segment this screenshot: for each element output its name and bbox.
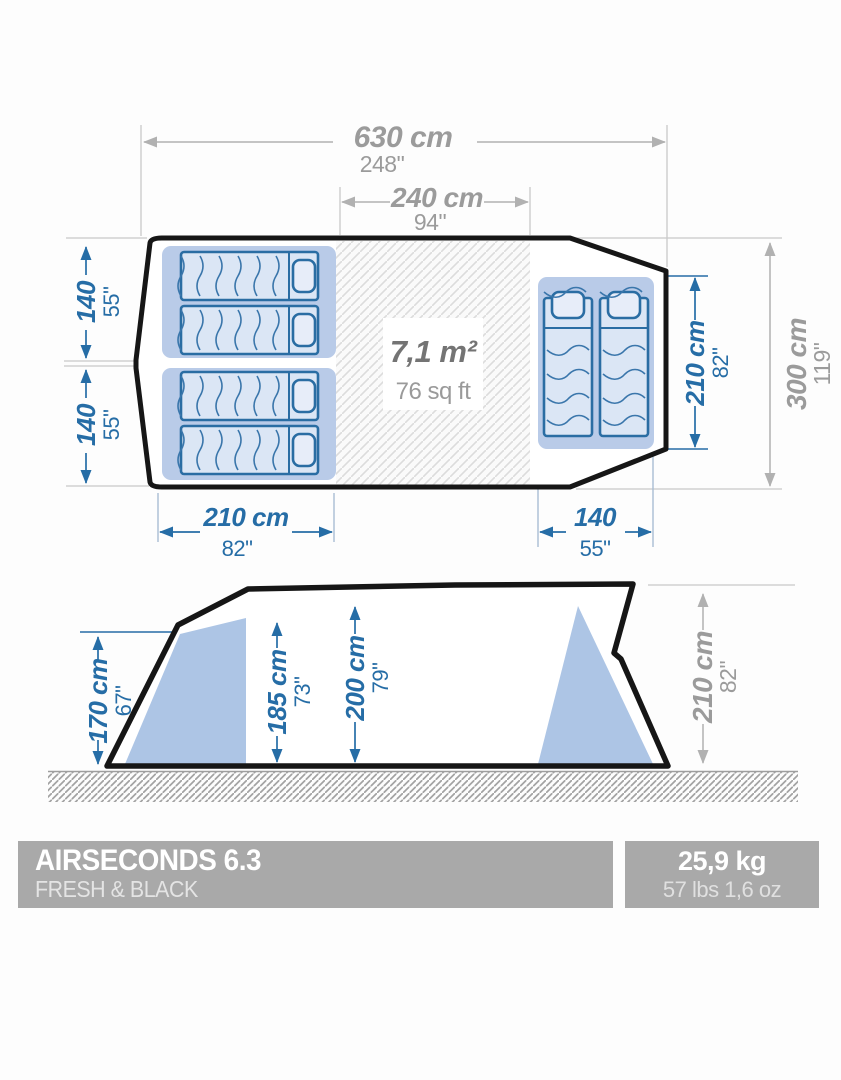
bed-icon	[600, 288, 648, 437]
dim-front-height-metric: 170 cm	[83, 658, 113, 744]
dim-living-width: 240 cm 94"	[342, 182, 528, 235]
product-name: AIRSECONDS 6.3	[35, 844, 261, 877]
bed-icon	[178, 426, 318, 474]
area-imperial: 76 sq ft	[396, 378, 472, 405]
bed-icon	[178, 306, 318, 354]
dim-left-bottom-metric: 140	[71, 403, 101, 446]
ground	[48, 772, 798, 803]
dim-left-top-imperial: 55"	[99, 287, 124, 318]
bed-icon	[178, 372, 318, 420]
dim-peak-height-imperial: 82"	[715, 661, 741, 694]
floor-plan: 7,1 m² 76 sq ft 630 cm 248" 240 cm 94" 1…	[64, 121, 835, 561]
dim-right-depth-imperial: 82"	[708, 348, 733, 379]
side-view: 170 cm 67" 185 cm 73" 200 cm 79"	[48, 584, 798, 802]
weight-imperial: 57 lbs 1,6 oz	[663, 877, 781, 903]
dim-right-width-imperial: 55"	[580, 536, 611, 561]
weight-metric: 25,9 kg	[678, 846, 766, 877]
area-label: 7,1 m² 76 sq ft	[383, 318, 483, 410]
dim-left-width-imperial: 82"	[222, 536, 253, 561]
dim-living-height-imperial: 79"	[368, 663, 393, 694]
dim-front-height-imperial: 67"	[111, 686, 136, 717]
area-metric: 7,1 m²	[390, 334, 478, 369]
dim-living-height-metric: 200 cm	[340, 635, 370, 722]
dim-bedroom-height-metric: 185 cm	[262, 649, 292, 735]
right-bedroom	[538, 277, 654, 449]
dim-right-depth-metric: 210 cm	[680, 320, 710, 407]
dim-peak-height: 210 cm 82"	[687, 594, 741, 763]
dim-peak-height-metric: 210 cm	[687, 631, 718, 724]
dim-total-depth-imperial: 119"	[809, 342, 835, 385]
dim-right-bedroom-depth: 210 cm 82"	[680, 278, 733, 447]
tent-spec-diagram: 7,1 m² 76 sq ft 630 cm 248" 240 cm 94" 1…	[0, 0, 841, 1080]
dim-total-width-imperial: 248"	[360, 151, 405, 177]
dim-living-width-imperial: 94"	[414, 209, 447, 235]
dim-total-depth: 300 cm 119"	[770, 243, 835, 486]
product-title-bar: AIRSECONDS 6.3 FRESH & BLACK	[18, 841, 613, 908]
dim-total-width: 630 cm 248"	[144, 121, 665, 177]
dim-right-bedroom-width: 140 55"	[540, 502, 651, 561]
dim-left-bedroom-bottom: 140 55"	[71, 370, 124, 483]
product-line: FRESH & BLACK	[35, 877, 198, 902]
dim-right-width-metric: 140	[574, 502, 617, 532]
bed-icon	[178, 252, 318, 300]
dim-left-width-metric: 210 cm	[202, 502, 289, 532]
dim-left-bottom-imperial: 55"	[99, 410, 124, 441]
dim-total-depth-metric: 300 cm	[781, 318, 812, 410]
dim-left-bedroom-top: 140 55"	[71, 247, 124, 358]
dim-left-top-metric: 140	[71, 280, 101, 323]
bed-icon	[544, 288, 592, 437]
dim-total-width-metric: 630 cm	[354, 121, 453, 154]
dim-bedroom-height-imperial: 73"	[290, 677, 315, 708]
dim-left-bedroom-width: 210 cm 82"	[160, 502, 332, 561]
diagram-canvas: 7,1 m² 76 sq ft 630 cm 248" 240 cm 94" 1…	[0, 0, 841, 835]
weight-bar: 25,9 kg 57 lbs 1,6 oz	[625, 841, 819, 908]
